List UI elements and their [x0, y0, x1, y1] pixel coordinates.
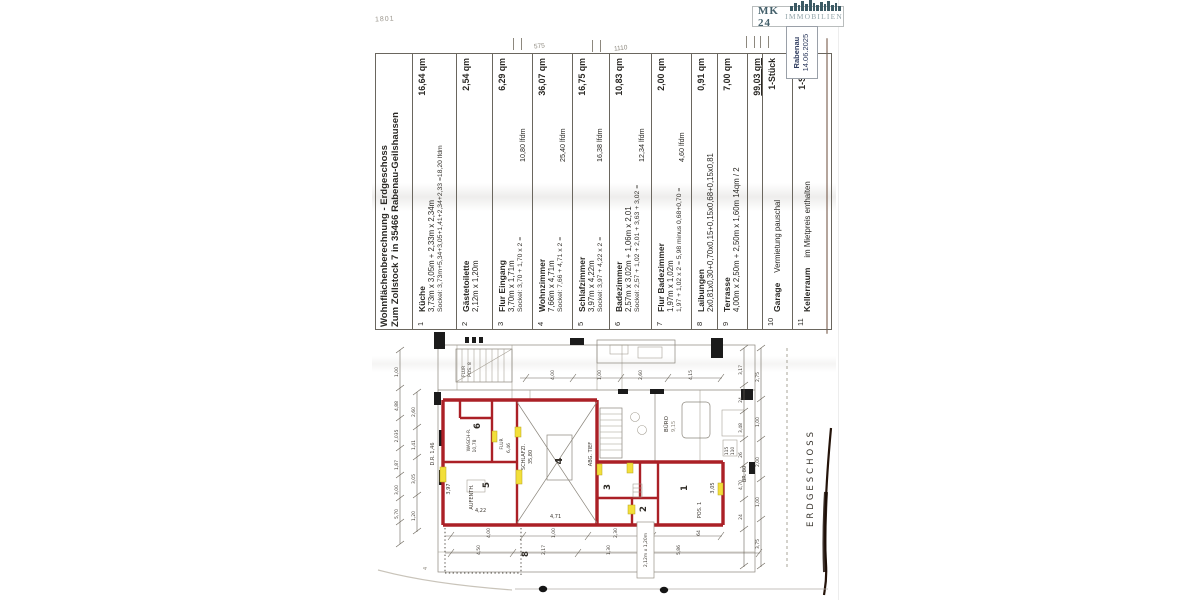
dim-label: 2,035	[394, 429, 400, 442]
pencil-tick	[760, 36, 769, 48]
dim-label: BR. 80	[742, 466, 748, 482]
room-name: Garage	[772, 283, 782, 312]
row-number: 7	[652, 312, 691, 329]
room-name: Terrasse	[722, 162, 732, 312]
plan-label: 10,78	[472, 439, 478, 452]
apartment-red-walls	[443, 400, 723, 525]
plan-label: FLUR	[499, 438, 505, 449]
dim-label: 2,00	[755, 457, 761, 467]
dim-label: 110	[730, 447, 736, 456]
room-lfdm: 10,80 lfdm	[493, 122, 532, 162]
scanned-document-page: 1801 575 1110 Wohnflächenberechnung - Er…	[0, 0, 1200, 600]
table-row: 11Kellerraumim Mietpreis enthalten1-Stüc…	[792, 54, 826, 329]
room-lfdm	[413, 122, 456, 162]
dim-label: 4,88	[394, 401, 400, 411]
plan-label: POS. 8	[467, 362, 473, 377]
table-address: Zum Zollstock 7 in 35466 Rabenau-Geilsha…	[390, 54, 401, 327]
room-number: 5	[482, 482, 492, 488]
plan-label: 6,46	[506, 443, 512, 453]
room-name: Flur Badezimmer	[656, 162, 666, 312]
dim-label: 2,17	[541, 545, 547, 555]
city-skyline-icon	[789, 0, 843, 11]
dim-label: 115	[724, 447, 730, 456]
table-row: 6Badezimmer2,57m x 3,02m + 1,06m x 2,01S…	[609, 54, 651, 329]
row-number: 1	[413, 312, 456, 329]
room-number: 6	[473, 423, 483, 429]
plan-label: WASCH-R.	[466, 429, 472, 452]
table-total-row: 99,03 qm	[747, 54, 762, 329]
row-number: 10	[763, 312, 792, 329]
room-sockel: 1,97 + 1,02 x 2 = 5,98 minus 0,68+0,70 =	[676, 162, 684, 312]
room-name: Schlafzimmer	[577, 162, 587, 312]
pencil-tick	[592, 40, 601, 52]
logo-brand-text: MK 24	[758, 5, 781, 29]
room-lfdm	[763, 122, 792, 162]
row-number: 2	[457, 312, 492, 329]
bathroom-detail: 6 WASCH-R. 10,78 FLUR 6,46	[466, 423, 512, 453]
date-stamp: Rabenau 14.06.2025	[786, 26, 818, 79]
dim-label: 1,00	[755, 417, 761, 427]
table-row: 1Küche3,73m x 3,05m + 2,33m x 2,34mSocke…	[412, 54, 456, 329]
room-name: Gästetoilette	[461, 162, 471, 312]
row-description: Flur Badezimmer1,97m x 1,02m1,97 + 1,02 …	[652, 162, 691, 312]
room-dimensions: 7,66m x 4,71m	[547, 162, 557, 312]
room-lfdm: 16,38 lfdm	[573, 122, 609, 162]
dim-label: 1,00	[551, 528, 557, 538]
dim-label: 24	[738, 514, 744, 520]
dim-label: 4,50	[476, 545, 482, 555]
room-lfdm: 12,34 lfdm	[610, 122, 651, 162]
table-row: 4Wohnzimmer7,66m x 4,71mSockel: 7,66 + 4…	[532, 54, 572, 329]
table-row: 2Gästetoilette2,12m x 1,20m2,54 qm	[456, 54, 492, 329]
stamp-date: 14.06.2025	[802, 34, 811, 72]
dim-label: 3,05	[411, 474, 417, 484]
dim-label: 2,30	[613, 528, 619, 538]
room-number: 8	[521, 551, 531, 557]
row-number: 6	[610, 312, 651, 329]
room-number: 1	[680, 485, 690, 491]
room-lfdm	[793, 122, 826, 162]
room-area: 16,64 qm	[413, 54, 456, 122]
room-area: 16,75 qm	[573, 54, 609, 122]
table-header: Wohnflächenberechnung - Erdgeschoss Zum …	[376, 54, 412, 329]
row-number: 4	[533, 312, 572, 329]
room-lfdm	[748, 122, 762, 162]
room-number: 3	[603, 484, 613, 490]
plan-label: BÜRO	[663, 415, 670, 432]
row-number: 11	[793, 312, 826, 329]
dim-label: 4,00	[550, 370, 556, 380]
room-area: 99,03 qm	[748, 54, 762, 122]
room-dimensions: Vermietung pauschal	[773, 200, 782, 273]
row-number	[748, 312, 762, 329]
room-name: Wohnzimmer	[537, 162, 547, 312]
room-number: 4	[554, 457, 565, 464]
room-lfdm	[692, 122, 717, 162]
dim-label: 24	[738, 397, 744, 403]
table-rows: 1Küche3,73m x 3,05m + 2,33m x 2,34mSocke…	[412, 54, 826, 329]
room-area: 36,07 qm	[533, 54, 572, 122]
dim-label: 2,75	[755, 372, 761, 382]
room-name: Flur Eingang	[497, 162, 507, 312]
plan-label: FLUR	[461, 366, 467, 377]
bedroom-detail: 5 AUFENTH. 3,97 4,22	[446, 480, 492, 514]
dim-label: 1,00	[597, 370, 603, 380]
dim-label: 5,86	[676, 545, 682, 555]
plan-label: POS. 1	[697, 502, 703, 518]
room-dimensions: 3,73m x 3,05m + 2,33m x 2,34m	[427, 162, 437, 312]
living-room-detail: 4 SCHLAFZI. 35,80 ABG. TIEF 4,71	[517, 402, 597, 523]
floor-label: ERDGESCHOSS	[806, 429, 816, 527]
dim-label: 26	[738, 452, 744, 458]
room-sockel: Sockel: 3,97 + 4,22 x 2 =	[597, 162, 605, 312]
dim-label: 4,15	[688, 370, 694, 380]
table-title: Wohnflächenberechnung - Erdgeschoss	[379, 54, 390, 327]
row-description: Wohnzimmer7,66m x 4,71mSockel: 7,66 + 4,…	[533, 162, 572, 312]
room-dimensions: 3,97m x 4,22m	[587, 162, 597, 312]
dim-label: 3,00	[394, 485, 400, 495]
room-lfdm	[718, 122, 747, 162]
handwritten-mark: 1801	[375, 15, 395, 23]
dim-label: 1,41	[411, 440, 417, 450]
dim-label: D.R. 1,46	[430, 442, 436, 465]
room-dimensions: 3,70m x 1,71m	[507, 162, 517, 312]
dim-label: 1,20	[411, 511, 417, 521]
patch-text: 2,12m x 1,20m	[643, 533, 649, 567]
paste-over-patch: 2,12m x 1,20m	[637, 522, 654, 578]
roof-fixture	[597, 340, 675, 363]
room-lfdm: 25,40 lfdm	[533, 122, 572, 162]
pencil-tick	[746, 36, 755, 48]
floor-plan-drawing: FLUR POS. 8 BÜRO 9,15	[370, 332, 840, 600]
table-row: 7Flur Badezimmer1,97m x 1,02m1,97 + 1,02…	[651, 54, 691, 329]
row-number: 3	[493, 312, 532, 329]
handwritten-mark: 4	[423, 567, 429, 570]
room-area: 0,91 qm	[692, 54, 717, 122]
dim-label: 1,87	[394, 460, 400, 470]
handwritten-dim: 1110	[614, 44, 628, 52]
row-description: Kellerraumim Mietpreis enthalten	[793, 162, 826, 312]
row-description: Flur Eingang3,70m x 1,71mSockel: 3,70 + …	[493, 162, 532, 312]
staircase-centre	[600, 408, 622, 458]
room-sockel: Sockel: 2,57 + 1,02 + 2,01 + 3,63 + 3,02…	[634, 162, 642, 312]
upper-rooms-furniture: BÜRO 9,15	[631, 402, 745, 438]
table-row: 3Flur Eingang3,70m x 1,71mSockel: 3,70 +…	[492, 54, 532, 329]
pencil-tick	[513, 38, 522, 50]
dim-label: 2,60	[638, 370, 644, 380]
dim-label: 3,17	[738, 365, 744, 375]
room-dimensions: 1,97m x 1,02m	[666, 162, 676, 312]
table-row: 5Schlafzimmer3,97m x 4,22mSockel: 3,97 +…	[572, 54, 609, 329]
row-description: GarageVermietung pauschal	[763, 162, 792, 312]
window-markers	[440, 427, 723, 514]
dim-label: 3,48	[738, 423, 744, 433]
room-area: 7,00 qm	[718, 54, 747, 122]
room-sockel: Sockel: 3,73m+5,34+3,05+1,41+2,34+2,33 =…	[437, 162, 445, 312]
dim-label: 1,00	[755, 497, 761, 507]
room-sockel: Sockel: 3,70 + 1,70 x 2 =	[517, 162, 525, 312]
dim-label: 1,00	[394, 367, 400, 377]
row-description: Gästetoilette2,12m x 1,20m	[457, 162, 492, 312]
handwritten-dim: 575	[534, 42, 546, 50]
row-number: 8	[692, 312, 717, 329]
room-area: 6,29 qm	[493, 54, 532, 122]
plan-label: 9,15	[671, 421, 677, 432]
room-name: Küche	[417, 162, 427, 312]
room-dimensions: im Mietpreis enthalten	[803, 181, 812, 257]
room-dimensions: 2,57m x 3,02m + 1,06m x 2,01	[624, 162, 634, 312]
plan-dim: 3,05	[710, 482, 716, 493]
row-description: Badezimmer2,57m x 3,02m + 1,06m x 2,01So…	[610, 162, 651, 312]
agency-logo: MK 24 IMMOBILIEN	[752, 6, 844, 27]
room-name: Laibungen	[696, 162, 706, 312]
scan-artifacts: 4	[378, 428, 831, 595]
staircase-top: FLUR POS. 8	[456, 349, 512, 382]
room-name: Badezimmer	[614, 162, 624, 312]
kitchen-wc-detail: 1 2 3 POS. 1 3,05	[603, 482, 716, 518]
plan-dim: 3,97	[446, 483, 452, 494]
room-sockel: Sockel: 7,66 + 4,71 x 2 =	[557, 162, 565, 312]
room-lfdm	[457, 122, 492, 162]
row-number: 5	[573, 312, 609, 329]
plan-label: ABG. TIEF	[588, 442, 594, 467]
hole-punch-dot	[660, 587, 668, 593]
logo-suffix-text: IMMOBILIEN	[785, 12, 843, 21]
room-dimensions: 2x0,81x0,30+0,70x0,15+0,15x0,68+0,15x0,8…	[706, 162, 716, 312]
plan-label: 35,80	[528, 450, 534, 464]
row-description: Laibungen2x0,81x0,30+0,70x0,15+0,15x0,68…	[692, 162, 717, 312]
room-area: 2,00 qm	[652, 54, 691, 122]
room-name: Kellerraum	[802, 268, 812, 312]
row-description: Schlafzimmer3,97m x 4,22mSockel: 3,97 + …	[573, 162, 609, 312]
row-number: 9	[718, 312, 747, 329]
row-description: Terrasse4,00m x 2,50m + 2,50m x 1,60m 14…	[718, 162, 747, 312]
plan-label: SCHLAFZI.	[521, 444, 527, 471]
table-row: 9Terrasse4,00m x 2,50m + 2,50m x 1,60m 1…	[717, 54, 747, 329]
dim-label: 64	[696, 530, 702, 536]
dim-label: 1,30	[606, 545, 612, 555]
dim-label: 3,75	[755, 539, 761, 549]
dim-label: 2,60	[411, 407, 417, 417]
hole-punch-dot	[539, 586, 547, 592]
room-dimensions: 4,00m x 2,50m + 2,50m x 1,60m 14qm / 2	[732, 162, 742, 312]
row-description	[748, 162, 762, 312]
table-row: 8Laibungen2x0,81x0,30+0,70x0,15+0,15x0,6…	[691, 54, 717, 329]
room-area: 10,83 qm	[610, 54, 651, 122]
room-number: 2	[639, 506, 649, 512]
room-area: 2,54 qm	[457, 54, 492, 122]
plan-dim: 4,22	[475, 508, 486, 514]
table-row: 10GarageVermietung pauschal1-Stück	[762, 54, 792, 329]
room-lfdm: 4,60 lfdm	[652, 122, 691, 162]
plan-dim: 4,71	[550, 514, 561, 520]
room-dimensions: 2,12m x 1,20m	[471, 162, 481, 312]
area-calculation-table: Wohnflächenberechnung - Erdgeschoss Zum …	[375, 55, 830, 330]
plan-label: AUFENTH.	[469, 484, 475, 510]
dim-label: 5,70	[394, 509, 400, 519]
row-description: Küche3,73m x 3,05m + 2,33m x 2,34mSockel…	[413, 162, 456, 312]
dim-label: 4,00	[486, 528, 492, 538]
